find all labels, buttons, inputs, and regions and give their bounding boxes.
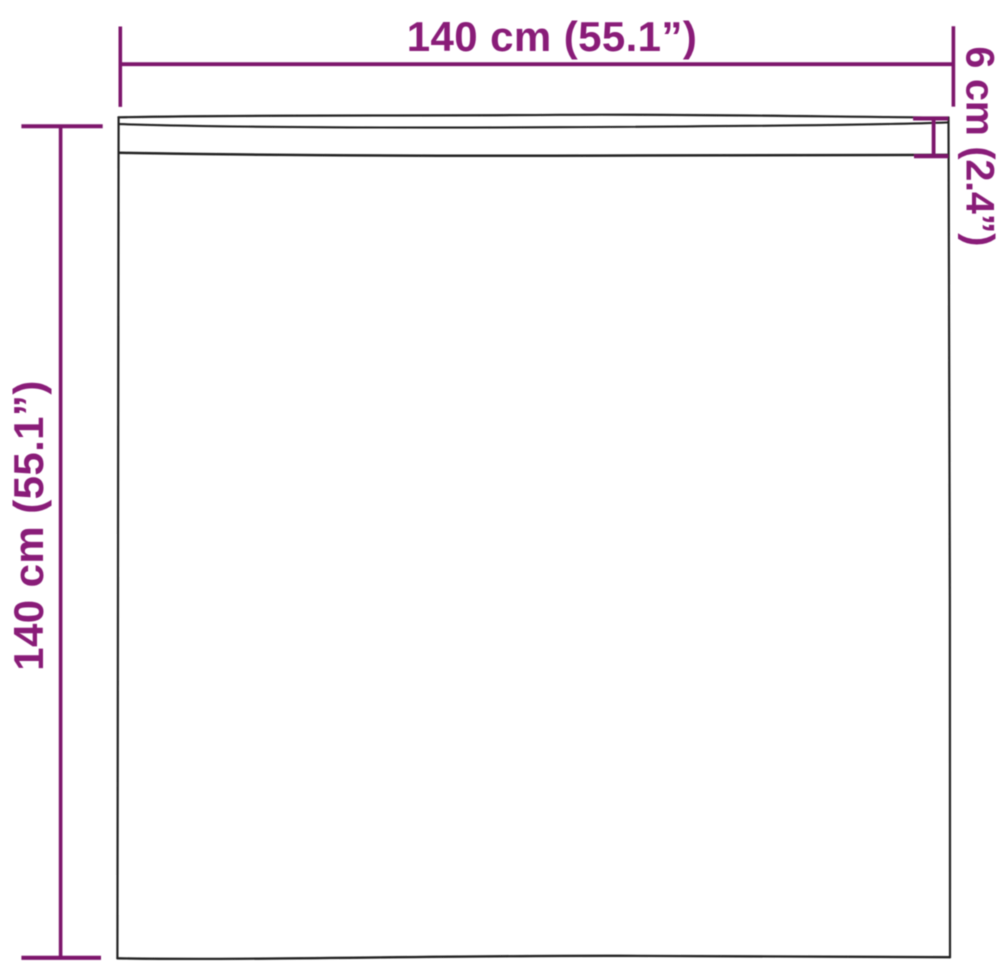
svg-text:6 cm (2.4”): 6 cm (2.4”) <box>958 46 1002 246</box>
svg-text:140 cm (55.1”): 140 cm (55.1”) <box>407 13 697 60</box>
svg-text:140 cm (55.1”): 140 cm (55.1”) <box>5 380 52 670</box>
